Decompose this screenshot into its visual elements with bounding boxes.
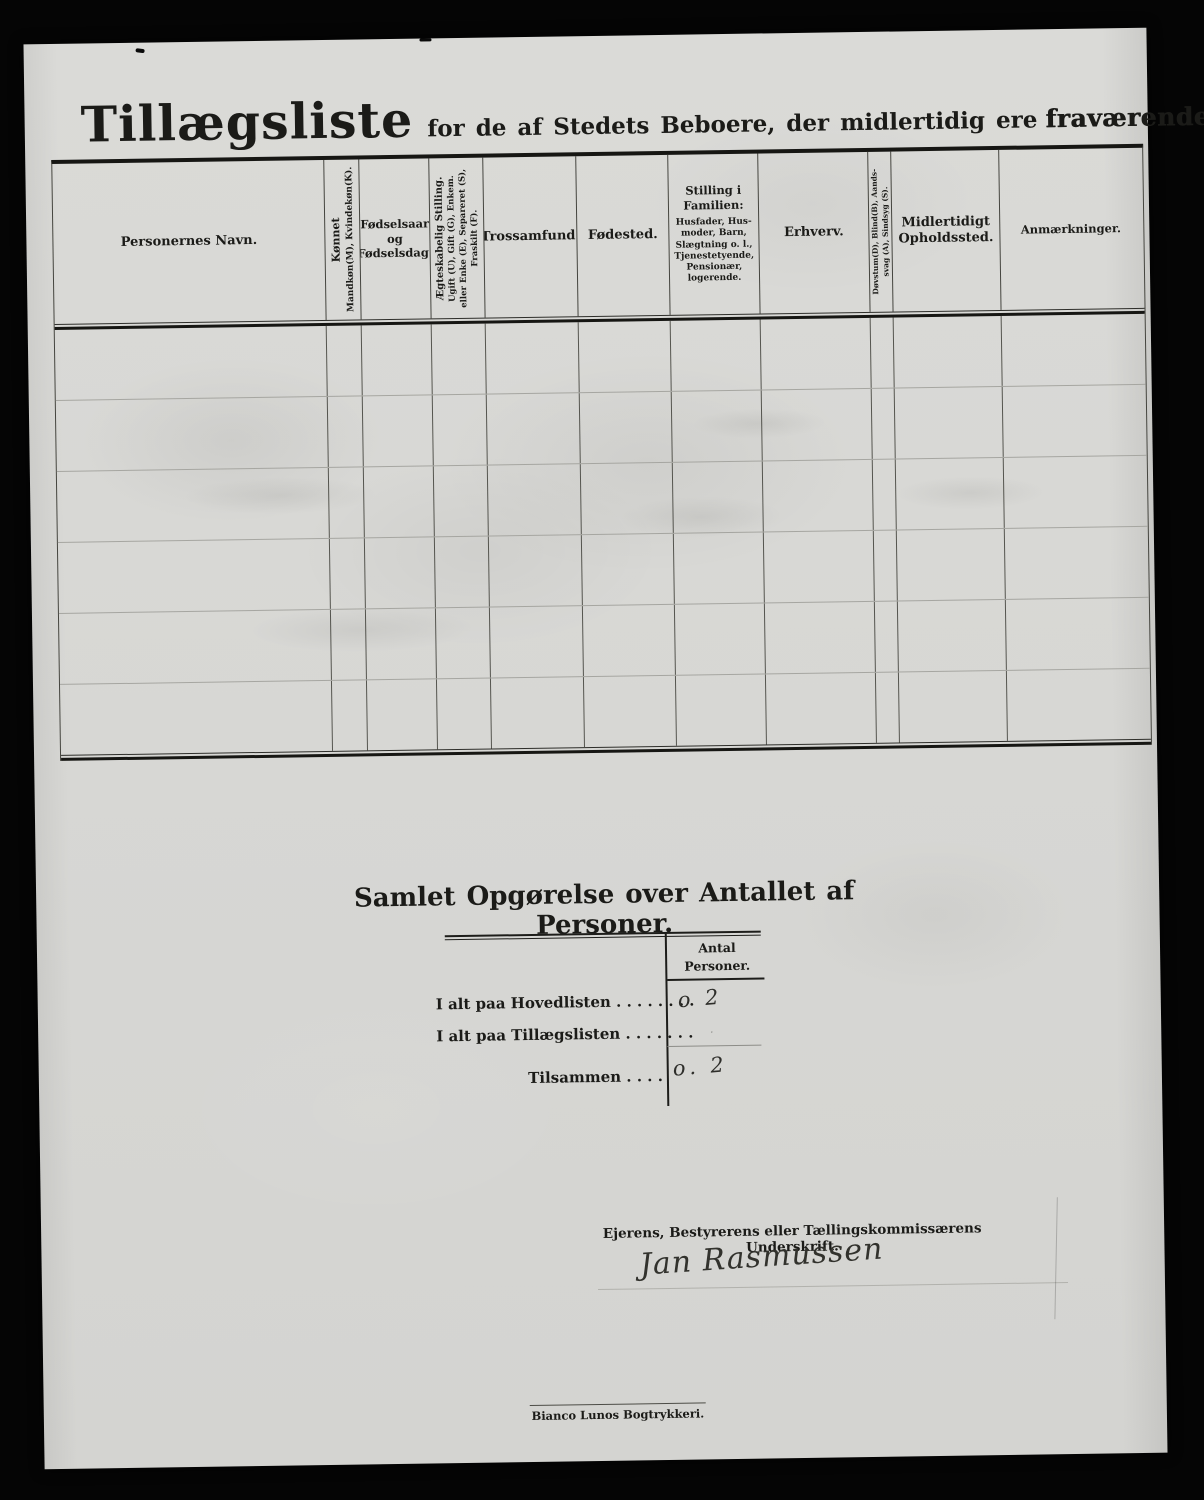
col-header-trossamfund: Trossamfund. bbox=[482, 156, 577, 317]
empty-cell bbox=[362, 395, 433, 466]
empty-cell bbox=[578, 321, 671, 392]
paper-crease bbox=[1054, 1197, 1057, 1319]
summary-col-header-antal-personer: Antal Personer. bbox=[669, 939, 766, 975]
empty-cell bbox=[673, 532, 764, 603]
empty-cell bbox=[487, 464, 581, 535]
empty-cell bbox=[366, 679, 437, 750]
empty-cell bbox=[761, 389, 872, 461]
printer-rule bbox=[530, 1402, 706, 1406]
empty-cell bbox=[59, 610, 331, 684]
empty-cell bbox=[579, 392, 672, 463]
empty-cell bbox=[60, 681, 332, 755]
empty-cell bbox=[489, 606, 583, 677]
empty-cell bbox=[583, 676, 676, 747]
empty-cell bbox=[331, 680, 367, 751]
empty-cell bbox=[436, 679, 491, 750]
col-header-doevstum: Døvstum(D), Blind(B), Aands- svag (A), S… bbox=[867, 152, 892, 312]
table-header-row: Personernes Navn. Kønnet Mandkøn(M), Kvi… bbox=[52, 148, 1144, 324]
empty-cell bbox=[434, 537, 489, 608]
empty-cell bbox=[364, 537, 435, 608]
empty-cell bbox=[760, 318, 871, 390]
empty-cell bbox=[431, 324, 486, 395]
empty-cell bbox=[871, 389, 895, 459]
summary-row-hovedlisten: I alt paa Hovedlisten . . . . . . . . bbox=[436, 992, 662, 1013]
handwritten-value-tilsammen: o. 2 bbox=[672, 1052, 729, 1081]
summary-row-tillaegslisten: I alt paa Tillægslisten . . . . . . . bbox=[436, 1024, 662, 1045]
empty-cell bbox=[361, 324, 432, 395]
empty-cell bbox=[762, 460, 873, 532]
handwritten-value-hovedlisten: o 2 bbox=[677, 985, 724, 1013]
empty-cell bbox=[765, 673, 876, 745]
col-header-aegteskabelig-stilling: Ægteskabelig Stilling. Ugift (U), Gift (… bbox=[428, 158, 484, 319]
empty-cell bbox=[580, 463, 673, 534]
empty-cell bbox=[895, 458, 1004, 530]
col-header-midlertidigt-opholdssted: Midlertidigt Opholdssted. bbox=[890, 150, 1000, 312]
empty-cell bbox=[435, 608, 490, 679]
col-header-stilling-i-familien: Stilling i Familien: Husfader, Hus-moder… bbox=[667, 154, 759, 315]
summary-col-header-underline bbox=[667, 978, 764, 981]
empty-cell bbox=[582, 605, 675, 676]
col-header-foedested: Fødested. bbox=[575, 155, 669, 316]
empty-cell bbox=[873, 531, 897, 601]
scanned-paper-sheet: Tillægsliste for de af Stedets Beboere, … bbox=[23, 28, 1167, 1470]
col-header-anmaerkninger: Anmærkninger. bbox=[998, 148, 1142, 310]
page-title-rest: for de af Stedets Beboere, der midlertid… bbox=[427, 106, 1037, 142]
col-header-personernes-navn: Personernes Navn. bbox=[52, 160, 325, 324]
empty-cell bbox=[672, 462, 763, 533]
empty-cell bbox=[490, 677, 584, 748]
empty-cell bbox=[488, 535, 582, 606]
empty-cell bbox=[1005, 598, 1148, 670]
col-header-foedselsaar: Fødselsaar og Fødselsdag. bbox=[358, 158, 430, 319]
vertical-text: Ægteskabelig Stilling. Ugift (U), Gift (… bbox=[432, 168, 482, 308]
empty-cell bbox=[870, 318, 894, 388]
empty-cell bbox=[363, 466, 434, 537]
empty-cell bbox=[898, 671, 1007, 743]
page-title: Tillægsliste for de af Stedets Beboere, … bbox=[80, 80, 1111, 153]
empty-cell bbox=[55, 326, 327, 400]
empty-cell bbox=[330, 609, 366, 680]
empty-cell bbox=[671, 391, 762, 462]
empty-cell bbox=[1002, 385, 1145, 457]
empty-cell bbox=[485, 322, 579, 393]
scanned-census-page: { "colors": { "background": "#050505", "… bbox=[0, 0, 1204, 1500]
empty-cell bbox=[327, 396, 363, 467]
empty-cell bbox=[764, 602, 875, 674]
empty-cell bbox=[328, 467, 364, 538]
empty-cell bbox=[581, 534, 674, 605]
empty-cell bbox=[1004, 527, 1147, 599]
empty-cell bbox=[329, 538, 365, 609]
dot-leader: . . . . bbox=[621, 1067, 663, 1086]
empty-cell bbox=[58, 539, 330, 613]
empty-cell bbox=[874, 602, 898, 672]
empty-cell bbox=[57, 468, 329, 542]
vertical-text: Kønnet Mandkøn(M), Kvindekøn(K). bbox=[328, 167, 357, 313]
empty-cell bbox=[674, 603, 765, 674]
empty-cell bbox=[326, 325, 362, 396]
table-body bbox=[55, 314, 1151, 755]
printer-imprint: Bianco Lunos Bogtrykkeri. bbox=[513, 1406, 723, 1423]
empty-cell bbox=[1003, 456, 1146, 528]
empty-cell bbox=[893, 316, 1002, 388]
empty-cell bbox=[897, 600, 1006, 672]
col-header-label: Personernes Navn. bbox=[121, 233, 258, 251]
empty-cell bbox=[432, 395, 487, 466]
page-title-main: Tillægsliste bbox=[80, 91, 413, 154]
summary-sum-rule bbox=[667, 1045, 761, 1047]
col-header-sub-text: Husfader, Hus-moder, Barn, Slægtning o. … bbox=[669, 217, 759, 286]
summary-row-tilsammen: Tilsammen . . . . bbox=[437, 1067, 663, 1088]
empty-cell bbox=[875, 673, 899, 743]
empty-cell bbox=[894, 387, 1003, 459]
scan-speck bbox=[419, 38, 431, 41]
empty-cell bbox=[670, 320, 761, 391]
empty-cell bbox=[763, 531, 874, 603]
vertical-text: Døvstum(D), Blind(B), Aands- svag (A), S… bbox=[869, 169, 892, 295]
scan-speck bbox=[135, 48, 144, 53]
empty-cell bbox=[896, 529, 1005, 601]
empty-cell bbox=[365, 608, 436, 679]
page-title-emphasis: fraværende. bbox=[1045, 102, 1204, 134]
col-header-koennet: Kønnet Mandkøn(M), Kvindekøn(K). bbox=[323, 159, 360, 320]
empty-cell bbox=[433, 466, 488, 537]
empty-cell bbox=[1001, 314, 1144, 386]
empty-cell bbox=[675, 674, 766, 745]
empty-cell bbox=[486, 393, 580, 464]
handwritten-value-tillaegslisten: · bbox=[710, 1027, 718, 1039]
col-header-erhverv: Erhverv. bbox=[757, 152, 869, 314]
signature-line bbox=[598, 1282, 1068, 1290]
empty-cell bbox=[1006, 669, 1149, 741]
empty-cell bbox=[56, 397, 328, 471]
dot-leader: . . . . . . . bbox=[620, 1024, 693, 1043]
empty-cell bbox=[872, 460, 896, 530]
census-table: Personernes Navn. Kønnet Mandkøn(M), Kvi… bbox=[51, 144, 1152, 761]
